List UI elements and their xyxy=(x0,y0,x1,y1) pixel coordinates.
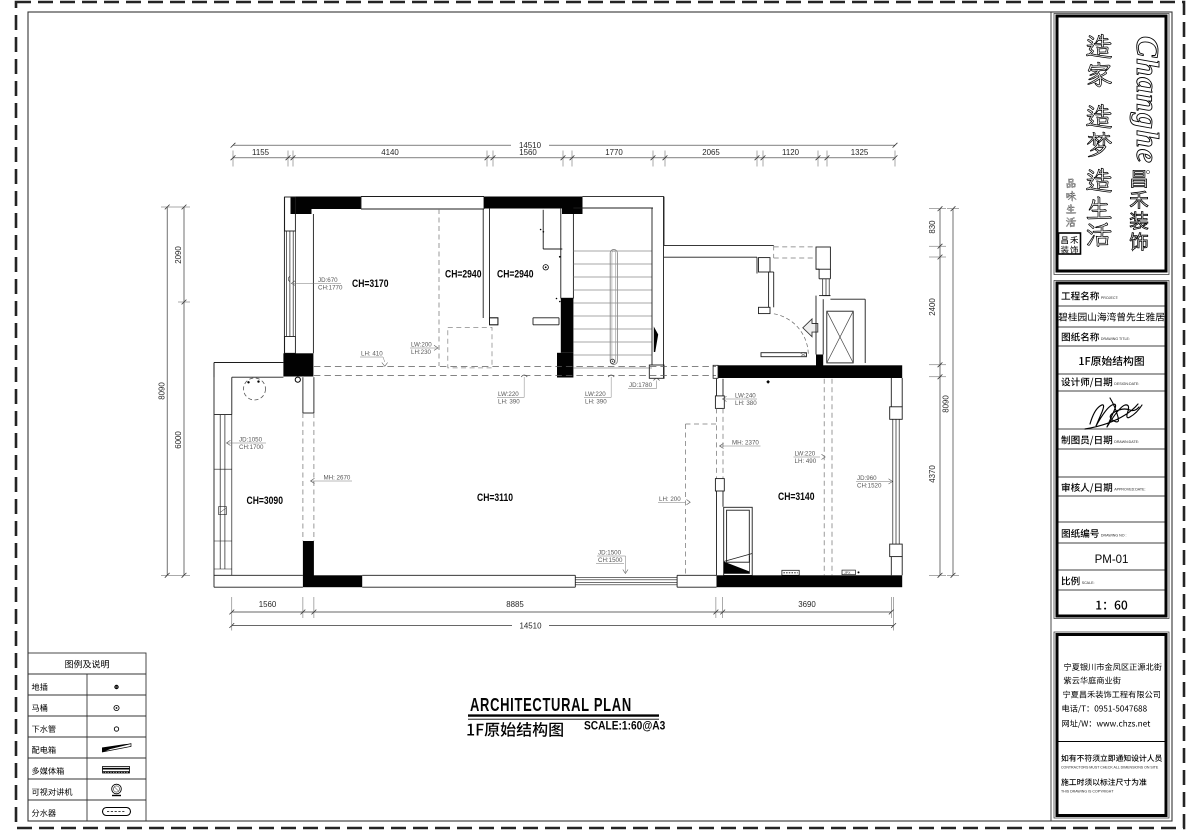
svg-text:JD:1500: JD:1500 xyxy=(598,550,622,557)
svg-text:APPROVED:DATE:: APPROVED:DATE: xyxy=(1114,488,1145,492)
svg-text:LW:220: LW:220 xyxy=(585,391,606,398)
svg-text:PROJECT:: PROJECT: xyxy=(1101,296,1119,300)
svg-text:3690: 3690 xyxy=(798,600,816,609)
svg-text:JD:670: JD:670 xyxy=(318,277,338,284)
svg-text:DRAWN:DATE:: DRAWN:DATE: xyxy=(1114,440,1139,444)
svg-text:DRAWING NO :: DRAWING NO : xyxy=(1101,534,1127,538)
svg-text:CH=3090: CH=3090 xyxy=(247,495,284,507)
svg-text:SCALE:1:60@A3: SCALE:1:60@A3 xyxy=(584,720,665,733)
svg-text:14510: 14510 xyxy=(520,622,543,631)
svg-text:1560: 1560 xyxy=(259,600,277,609)
svg-text:1155: 1155 xyxy=(252,148,270,157)
svg-text:LH: 380: LH: 380 xyxy=(735,400,757,407)
svg-text:JD:1050: JD:1050 xyxy=(239,437,263,444)
svg-text:LH:230: LH:230 xyxy=(411,349,432,356)
svg-text:MH: 2670: MH: 2670 xyxy=(324,475,351,482)
svg-text:4140: 4140 xyxy=(381,148,399,157)
svg-text:1560: 1560 xyxy=(519,148,537,157)
svg-text:CH=3140: CH=3140 xyxy=(778,491,815,503)
svg-text:THIS DRAWING IS COPYRIGHT: THIS DRAWING IS COPYRIGHT xyxy=(1061,790,1114,794)
svg-text:JD:1780: JD:1780 xyxy=(629,382,653,389)
svg-text:2065: 2065 xyxy=(702,148,720,157)
svg-text:SCALE:: SCALE: xyxy=(1082,581,1095,585)
svg-text:JPX: JPX xyxy=(844,571,851,575)
svg-text:8885: 8885 xyxy=(506,600,524,609)
svg-text:LH: 490: LH: 490 xyxy=(795,458,817,465)
svg-text:CH:1520: CH:1520 xyxy=(857,483,882,490)
svg-text:4370: 4370 xyxy=(928,465,937,483)
svg-text:LH: 390: LH: 390 xyxy=(585,399,607,406)
svg-text:6000: 6000 xyxy=(174,431,183,449)
svg-text:2400: 2400 xyxy=(928,298,937,316)
svg-text:CH:1770: CH:1770 xyxy=(318,285,343,292)
svg-text:PM-01: PM-01 xyxy=(1095,554,1129,566)
svg-text:CH=2940: CH=2940 xyxy=(445,269,482,281)
svg-text:LH: 390: LH: 390 xyxy=(498,399,520,406)
svg-text:LW:220: LW:220 xyxy=(795,451,816,458)
svg-text:DESIGN:DATE:: DESIGN:DATE: xyxy=(1114,382,1139,386)
svg-text:CH=3170: CH=3170 xyxy=(352,278,389,290)
svg-text:1120: 1120 xyxy=(782,148,800,157)
svg-text:JD:960: JD:960 xyxy=(857,475,877,482)
svg-text:830: 830 xyxy=(928,220,937,234)
svg-text:1325: 1325 xyxy=(851,148,869,157)
svg-text:CH=3110: CH=3110 xyxy=(477,492,513,504)
svg-text:LH: 200: LH: 200 xyxy=(659,496,681,503)
svg-text:Changhe: Changhe xyxy=(1130,36,1166,164)
svg-text:8090: 8090 xyxy=(942,395,951,413)
svg-text:2090: 2090 xyxy=(174,246,183,264)
svg-text:1770: 1770 xyxy=(605,148,623,157)
svg-text:ARCHITECTURAL PLAN: ARCHITECTURAL PLAN xyxy=(470,696,632,716)
svg-text:LW:240: LW:240 xyxy=(735,393,756,400)
svg-text:DRAWING TITLE:: DRAWING TITLE: xyxy=(1101,337,1130,341)
svg-text:CONTRACTORS MUST CHECK ALL DIM: CONTRACTORS MUST CHECK ALL DIMENSIONS ON… xyxy=(1061,766,1159,770)
svg-text:LW:220: LW:220 xyxy=(498,391,519,398)
svg-text:CH=2940: CH=2940 xyxy=(497,269,534,281)
svg-text:CH:1500: CH:1500 xyxy=(598,557,623,564)
svg-text:MH: 2370: MH: 2370 xyxy=(732,440,759,447)
svg-text:8090: 8090 xyxy=(158,382,167,400)
svg-text:LH: 410: LH: 410 xyxy=(361,351,383,358)
svg-text:LW:200: LW:200 xyxy=(411,342,432,349)
svg-text:CH:1700: CH:1700 xyxy=(239,444,264,451)
